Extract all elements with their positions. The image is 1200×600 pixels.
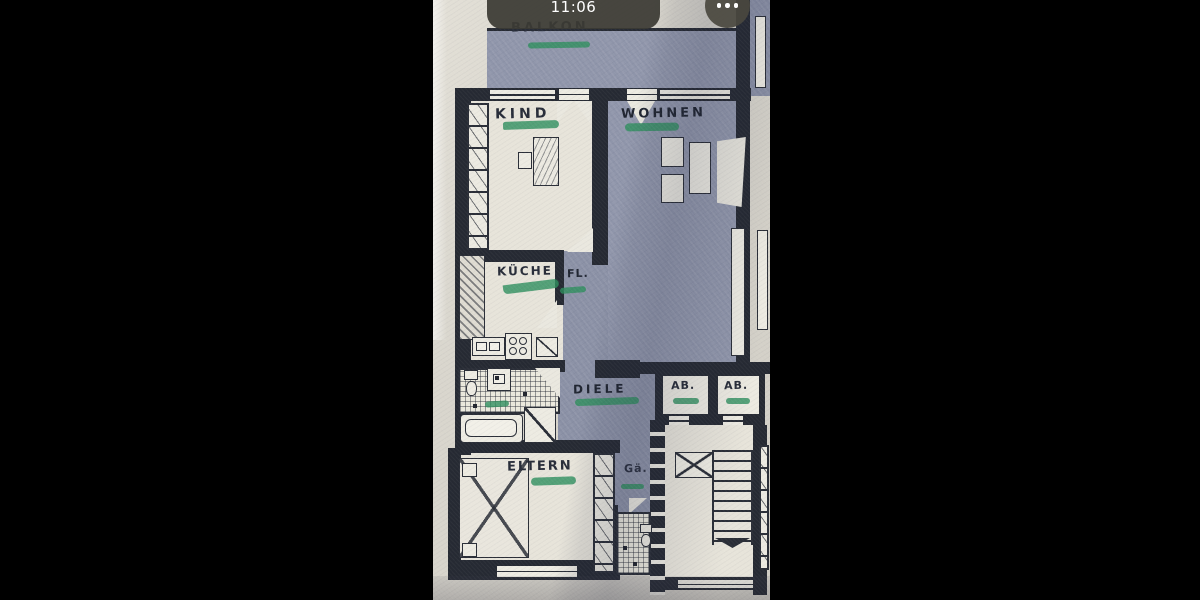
tile-dot — [473, 404, 477, 408]
sink-unit — [472, 337, 505, 356]
marker-highlight-bad — [485, 400, 509, 407]
shower-bad — [487, 368, 511, 391]
counter-unit — [536, 337, 558, 357]
toilet-bowl-gaeste — [641, 534, 651, 547]
marker-highlight-balkon — [528, 41, 590, 48]
marker-highlight-eltern — [531, 476, 576, 486]
pillow-1 — [462, 463, 477, 477]
stair-flight — [712, 450, 753, 545]
bathtub-basin — [465, 419, 517, 437]
window-kind — [490, 90, 555, 99]
marker-highlight-ab-1 — [673, 398, 699, 404]
window-eltern — [497, 566, 577, 577]
marker-highlight-gaeste-wc — [621, 484, 644, 489]
window-staircase — [678, 580, 753, 588]
wardrobe-eltern — [593, 453, 615, 573]
toilet-bowl-bad — [466, 381, 477, 396]
tile-dot — [623, 546, 627, 550]
sink-basin-1 — [476, 342, 487, 351]
burner-icon — [519, 337, 527, 345]
washing-machine — [524, 407, 556, 443]
photo-viewer-screen: BALKON KIND WOHNEN KÜCHE FL. DIELE AB. A… — [0, 0, 1200, 600]
ellipsis-icon — [725, 3, 730, 8]
nightstand-kind — [518, 152, 532, 169]
room-label-ab-1: AB. — [671, 379, 695, 392]
room-label-diele: DIELE — [573, 382, 627, 397]
bed-kind — [533, 137, 559, 186]
wall-kueche-flur — [555, 250, 564, 305]
door-gap-balcony-wohnen — [627, 89, 657, 100]
armchair-2 — [661, 174, 684, 203]
neighbor-radiator-right — [757, 230, 768, 330]
tile-dot — [523, 392, 527, 396]
burner-icon — [519, 347, 527, 355]
ellipsis-icon — [734, 3, 739, 8]
door-gap-balcony-kind — [559, 89, 589, 100]
armchair-1 — [661, 137, 684, 167]
sink-basin-2 — [489, 342, 500, 351]
time-label: 11:06 — [551, 0, 597, 16]
door-gap-ab-1 — [669, 416, 689, 425]
room-label-eltern: ELTERN — [507, 458, 573, 474]
marker-highlight-wohnen — [625, 123, 679, 132]
bathtub — [460, 414, 523, 443]
burner-icon — [509, 337, 517, 345]
wall-kind-wohnen — [592, 88, 608, 265]
wardrobe-kind — [467, 103, 489, 250]
room-label-wohnen: WOHNEN — [621, 105, 706, 121]
sideboard-wohnen — [731, 228, 745, 356]
toilet-tank-gaeste — [640, 524, 652, 533]
window-wohnen — [660, 90, 730, 99]
neighbor-stair-cells — [759, 445, 769, 570]
room-label-ab-2: AB. — [724, 379, 748, 392]
floor-plan-photo[interactable]: BALKON KIND WOHNEN KÜCHE FL. DIELE AB. A… — [433, 0, 770, 600]
marker-highlight-ab-2 — [726, 398, 750, 404]
paper-edge-highlight — [433, 0, 447, 340]
door-gap-ab-2 — [723, 416, 743, 425]
room-label-gaeste-wc: Gä. — [624, 462, 648, 475]
toilet-tank-bad — [464, 370, 478, 380]
tile-dot — [495, 376, 499, 380]
shaft-hatch — [459, 255, 485, 340]
ellipsis-icon — [717, 3, 722, 8]
balcony-area — [487, 30, 737, 88]
burner-icon — [509, 347, 517, 355]
date-time-pill: Heute 11:06 — [487, 0, 660, 29]
stair-upper-flight-symbol — [675, 452, 713, 478]
room-label-kueche: KÜCHE — [497, 264, 553, 279]
living-room-area — [603, 96, 736, 362]
room-label-flur: FL. — [567, 267, 589, 280]
wall-stair-left — [650, 420, 665, 595]
stove-unit — [505, 333, 532, 360]
pillow-2 — [462, 543, 477, 557]
table-wohnen — [689, 142, 711, 194]
tile-dot — [633, 562, 637, 566]
neighbor-radiator-top — [755, 16, 766, 88]
